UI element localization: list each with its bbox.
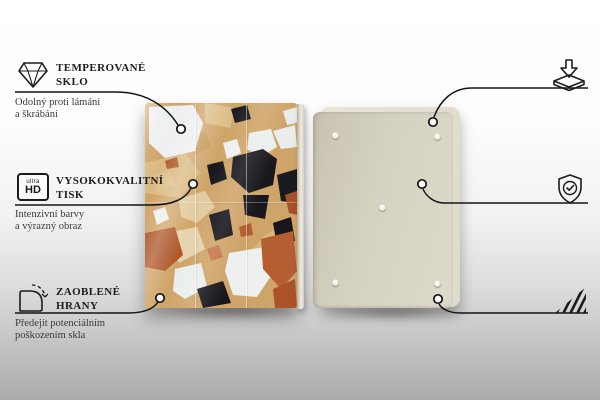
ultra-hd-icon-bottom-text: HD — [25, 185, 41, 196]
glass-crease — [145, 202, 297, 203]
feature-description: Intenzivní barvy a výrazný obraz — [15, 209, 84, 232]
anti-slip-pads-icon — [551, 58, 587, 94]
anti-slip-pad — [434, 280, 441, 287]
anti-slip-pad — [434, 133, 441, 140]
feature-description: Předejít potenciálním poškozením skla — [15, 318, 105, 341]
product-infographic: { "product_views": { "front": "glass boa… — [0, 0, 600, 400]
feature-title: TEMPEROVANÉ SKLO — [56, 61, 146, 89]
glass-crease — [246, 103, 247, 308]
glass-side-edge — [297, 104, 304, 309]
feature-title: ZAOBLENÉ HRANY — [56, 285, 120, 313]
shield-check-icon — [554, 173, 586, 205]
polished-edges-icon — [553, 286, 587, 314]
feature-description: Odolný proti lámání a škrábání — [15, 97, 100, 120]
anti-slip-pad — [379, 204, 386, 211]
anti-slip-pad — [332, 279, 339, 286]
product-back-panel — [313, 112, 453, 308]
ultra-hd-icon: ultra HD — [17, 173, 49, 201]
glass-reflection — [145, 103, 297, 308]
rounded-corner-icon — [16, 283, 48, 313]
feature-title: VYSOKOKVALITNÍ TISK — [56, 174, 163, 202]
anti-slip-pad — [332, 132, 339, 139]
diamond-icon — [16, 60, 50, 90]
product-front-board — [145, 103, 297, 308]
glass-crease — [195, 103, 196, 308]
